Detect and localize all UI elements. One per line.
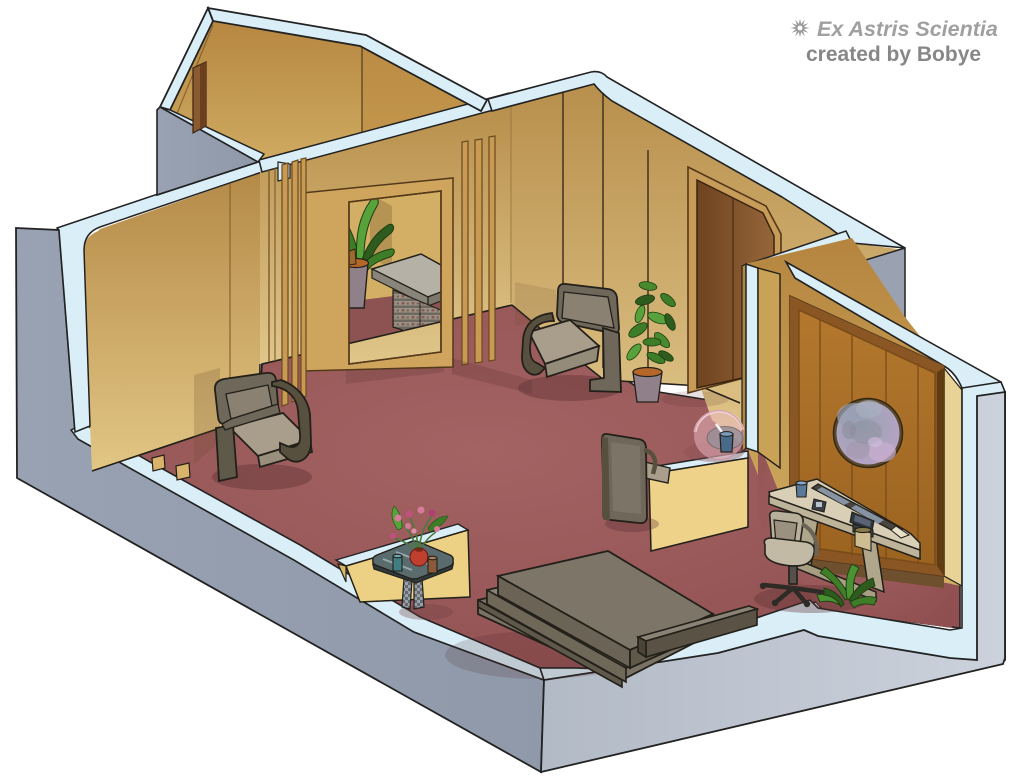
svg-text:Ex Astris Scientia: Ex Astris Scientia [817,17,998,41]
svg-text:created by Bobye: created by Bobye [806,43,981,66]
